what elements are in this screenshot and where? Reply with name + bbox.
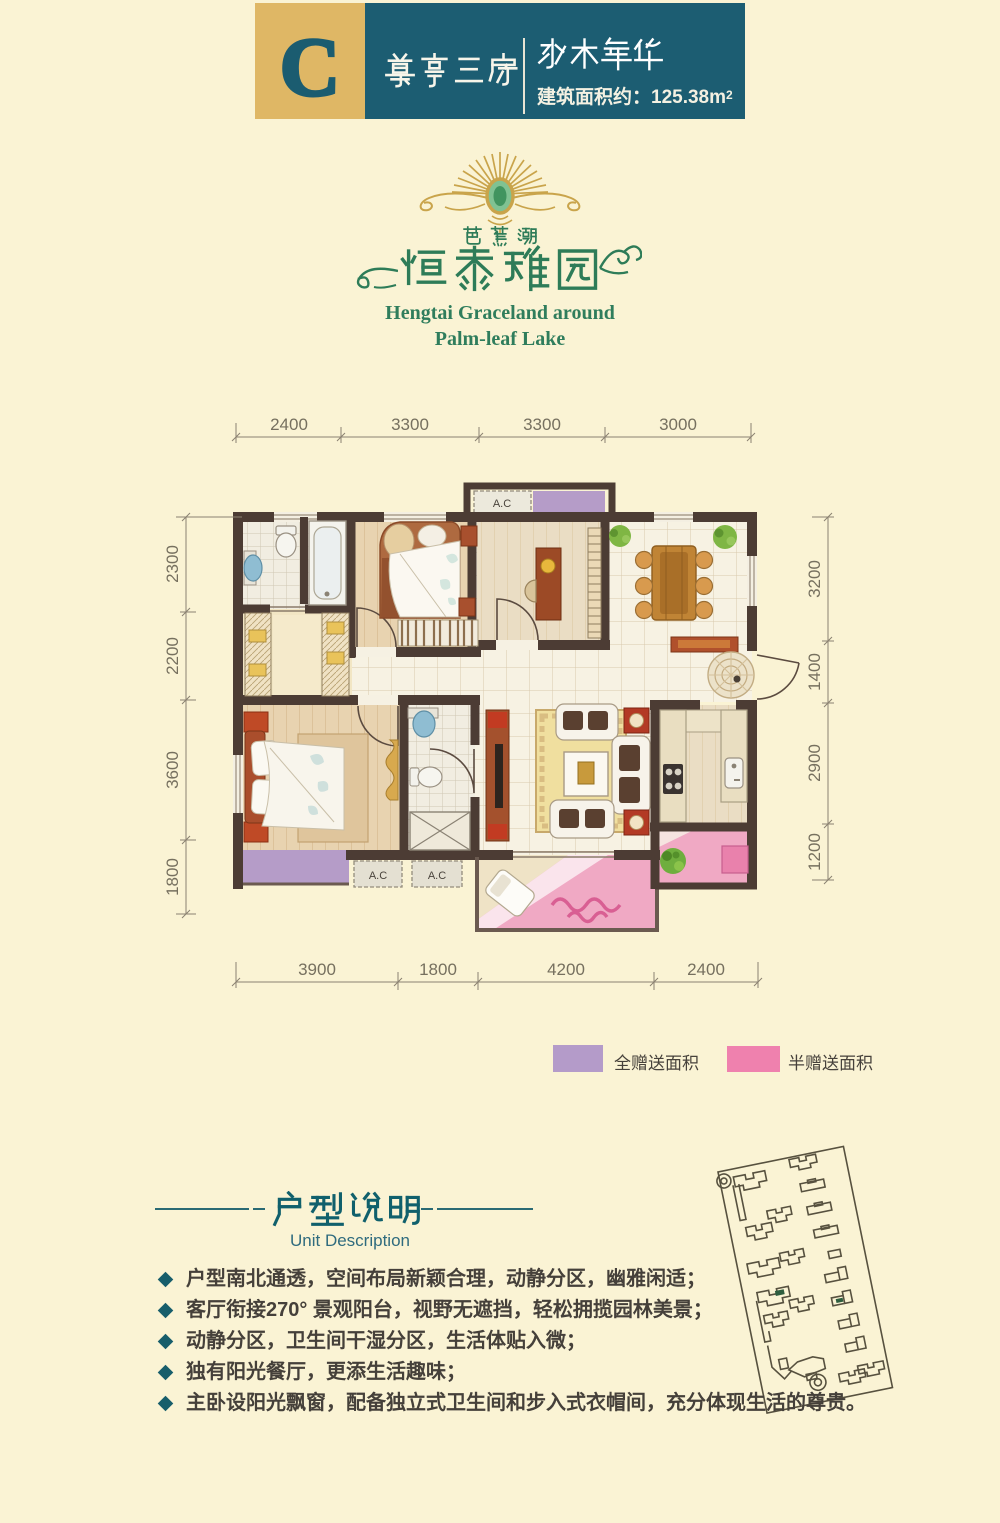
svg-text:3600: 3600 (163, 751, 182, 789)
svg-text:3200: 3200 (805, 560, 824, 598)
svg-text:1400: 1400 (805, 653, 824, 691)
svg-text:1200: 1200 (805, 833, 824, 871)
svg-text:2400: 2400 (270, 415, 308, 434)
svg-text:3300: 3300 (391, 415, 429, 434)
svg-text:3000: 3000 (659, 415, 697, 434)
svg-text:A.C: A.C (428, 870, 446, 882)
svg-text:1800: 1800 (163, 858, 182, 896)
svg-text:3300: 3300 (523, 415, 561, 434)
svg-text:A.C: A.C (369, 870, 387, 882)
svg-text:2400: 2400 (687, 960, 725, 979)
svg-text:2900: 2900 (805, 744, 824, 782)
svg-text:3900: 3900 (298, 960, 336, 979)
svg-text:4200: 4200 (547, 960, 585, 979)
svg-text:2300: 2300 (163, 545, 182, 583)
svg-text:2200: 2200 (163, 637, 182, 675)
svg-text:1800: 1800 (419, 960, 457, 979)
svg-text:A.C: A.C (493, 498, 511, 510)
